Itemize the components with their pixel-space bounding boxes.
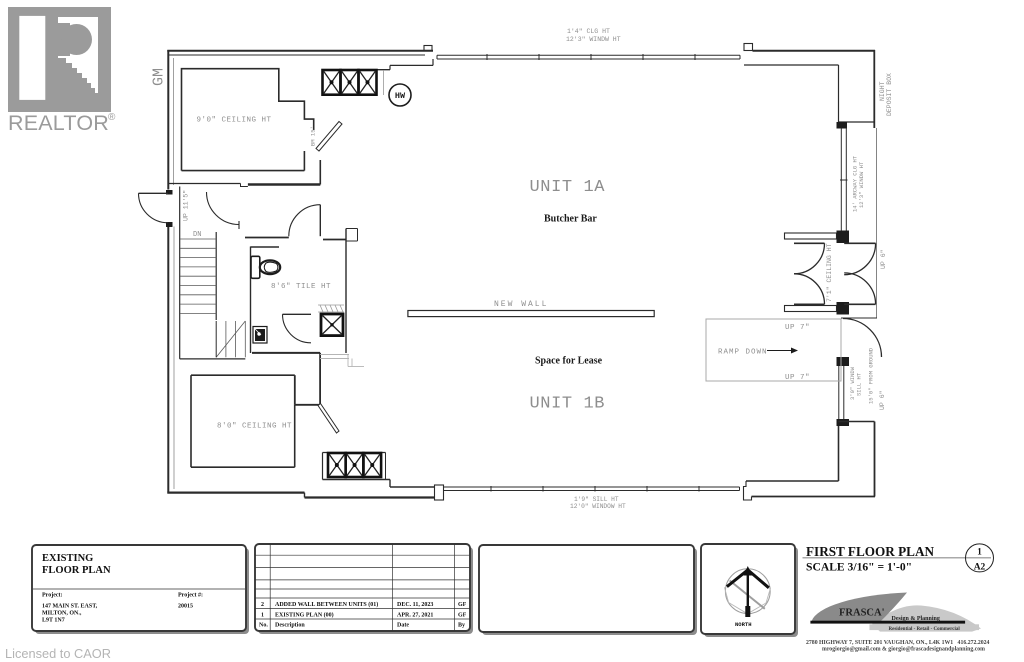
svg-text:NEW WALL: NEW WALL: [494, 300, 548, 309]
svg-text:12'0" WINDOW HT: 12'0" WINDOW HT: [570, 503, 626, 510]
svg-text:8'6" TILE HT: 8'6" TILE HT: [271, 283, 331, 291]
svg-text:NORTH: NORTH: [735, 621, 752, 628]
svg-text:1: 1: [977, 548, 982, 558]
svg-text:9'0" CEILING HT: 9'0" CEILING HT: [197, 117, 272, 125]
svg-text:UP 7": UP 7": [785, 324, 810, 332]
svg-text:UP 6": UP 6": [879, 390, 886, 410]
svg-text:UP 6": UP 6": [880, 249, 887, 269]
svg-text:FLOOR PLAN: FLOOR PLAN: [42, 565, 111, 576]
svg-text:UP 11'5": UP 11'5": [183, 190, 190, 221]
svg-text:Space for Lease: Space for Lease: [535, 356, 603, 367]
svg-text:BM 15': BM 15': [310, 126, 317, 146]
svg-text:RAMP DOWN: RAMP DOWN: [718, 349, 768, 357]
svg-text:Project:: Project:: [42, 593, 63, 599]
svg-text:REALTOR: REALTOR: [8, 111, 109, 135]
svg-text:MILTON, ON.,: MILTON, ON.,: [42, 611, 82, 617]
svg-text:GM: GM: [151, 68, 168, 86]
svg-text:FIRST FLOOR PLAN: FIRST FLOOR PLAN: [806, 544, 934, 559]
svg-text:2: 2: [261, 602, 264, 608]
svg-text:Project #:: Project #:: [178, 593, 203, 599]
svg-text:DN: DN: [193, 231, 201, 239]
svg-text:8'0" CEILING HT: 8'0" CEILING HT: [217, 423, 292, 431]
svg-text:Description: Description: [275, 623, 305, 629]
svg-text:HW: HW: [395, 91, 406, 101]
svg-text:FRASCA': FRASCA': [839, 608, 885, 619]
svg-text:EXISTING: EXISTING: [42, 553, 93, 564]
svg-text:UP 7": UP 7": [785, 374, 810, 382]
svg-text:Licensed to CAOR: Licensed to CAOR: [5, 646, 111, 661]
svg-text:UNIT 1A: UNIT 1A: [530, 178, 606, 197]
svg-text:DEC. 11, 2023: DEC. 11, 2023: [397, 602, 433, 608]
svg-text:15'0" FROM GROUND: 15'0" FROM GROUND: [868, 347, 875, 404]
svg-text:Residential - Retail - Commerc: Residential - Retail - Commercial: [889, 627, 961, 632]
svg-text:1'9" SILL HT: 1'9" SILL HT: [574, 496, 619, 503]
svg-text:12'3" WINDW HT: 12'3" WINDW HT: [858, 161, 865, 208]
svg-text:By: By: [458, 623, 465, 629]
svg-text:12'3" WINDW HT: 12'3" WINDW HT: [566, 36, 621, 43]
svg-text:1: 1: [261, 613, 264, 619]
svg-text:DEPOSIT BOX: DEPOSIT BOX: [886, 73, 893, 116]
svg-text:1'4" CLG HT: 1'4" CLG HT: [567, 28, 610, 35]
svg-text:No.: No.: [259, 623, 268, 629]
svg-text:UNIT 1B: UNIT 1B: [530, 395, 606, 414]
svg-text:NIGHT: NIGHT: [879, 81, 886, 101]
svg-text:APR. 27, 2021: APR. 27, 2021: [397, 613, 433, 619]
svg-text:Design & Planning: Design & Planning: [892, 616, 940, 622]
svg-text:L9T 1N7: L9T 1N7: [42, 618, 65, 624]
svg-text:mrogiorgio@gmail.com & giorgio: mrogiorgio@gmail.com & giorgio@frascades…: [822, 647, 985, 653]
svg-text:EXISTING PLAN (00): EXISTING PLAN (00): [275, 612, 334, 619]
svg-text:GF: GF: [458, 613, 467, 619]
svg-text:SILL HT: SILL HT: [856, 372, 863, 396]
svg-text:7'1" CEILING HT: 7'1" CEILING HT: [826, 243, 833, 302]
svg-text:20015: 20015: [178, 604, 193, 610]
svg-text:Date: Date: [397, 623, 409, 629]
svg-text:2780 HIGHWAY 7, SUITE 201 VAUG: 2780 HIGHWAY 7, SUITE 201 VAUGHAN, ON., …: [806, 640, 990, 646]
svg-text:Butcher Bar: Butcher Bar: [544, 214, 597, 225]
svg-text:®: ®: [108, 112, 116, 123]
svg-text:A2: A2: [974, 563, 986, 573]
svg-text:ADDED WALL BETWEEN UNITS (01): ADDED WALL BETWEEN UNITS (01): [275, 601, 378, 608]
svg-text:GF: GF: [458, 602, 467, 608]
svg-text:147 MAIN ST. EAST,: 147 MAIN ST. EAST,: [42, 604, 98, 610]
svg-text:SCALE 3/16" = 1'-0": SCALE 3/16" = 1'-0": [806, 561, 912, 574]
